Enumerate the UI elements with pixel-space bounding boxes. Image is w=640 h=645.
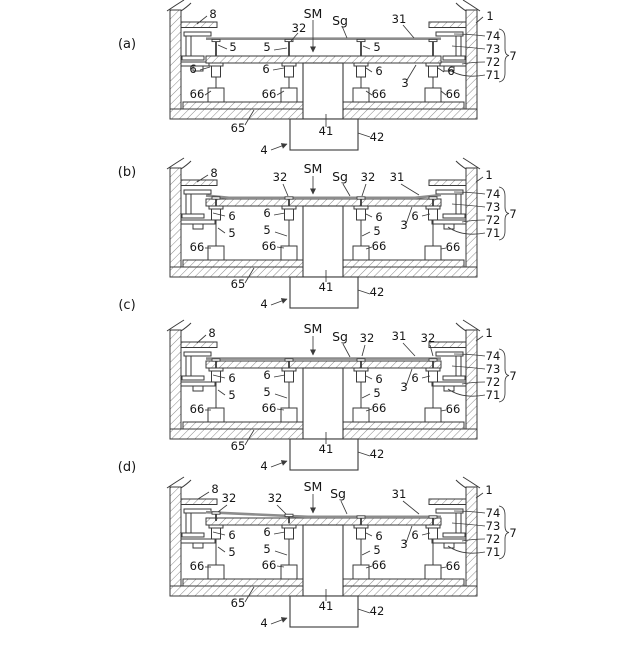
susceptor-plate	[206, 518, 441, 525]
panel-tag-c: (c)	[118, 298, 135, 313]
panel-tag-d: (d)	[118, 460, 136, 475]
panel-tag-a: (a)	[118, 37, 136, 52]
ref-label-42: 42	[370, 130, 385, 144]
ref-label-sg: Sg	[332, 13, 348, 28]
ref-label-66: 66	[446, 87, 461, 101]
susceptor-plate	[206, 361, 441, 368]
substrate-sheet	[206, 512, 441, 517]
panel-a: 8 1 SM Sg 31 32 5 5 5 6 6 6 6 66 66 66 6…	[167, 0, 517, 157]
ref-label-32: 32	[421, 331, 436, 345]
ref-label-sm: SM	[304, 321, 323, 336]
ref-label-65: 65	[231, 121, 246, 135]
ref-label-32: 32	[222, 491, 237, 505]
ref-label-1: 1	[485, 168, 492, 182]
figure-svg: 74 73 72 71 7 6 6 6 6 5 5 5 66 66 66 66 …	[0, 0, 640, 640]
ref-label-6: 6	[189, 62, 196, 76]
arrow-4	[271, 144, 287, 150]
ref-label-8: 8	[208, 326, 215, 340]
panel-b: 8 1 SM Sg 32 32 31	[167, 158, 517, 311]
ref-label-8: 8	[210, 166, 217, 180]
lift-pins	[212, 39, 437, 56]
ref-label-4: 4	[260, 143, 267, 157]
lift-shaft	[303, 63, 343, 119]
ref-label-5: 5	[229, 40, 236, 54]
ref-label-3: 3	[401, 76, 408, 90]
ref-label-31: 31	[390, 170, 405, 184]
ref-label-31: 31	[392, 329, 407, 343]
ref-label-sm: SM	[304, 6, 323, 21]
ref-label-32: 32	[273, 170, 288, 184]
ref-label-66: 66	[190, 87, 205, 101]
ref-label-sg: Sg	[332, 169, 348, 184]
substrate-sheet	[206, 195, 441, 198]
ref-label-6: 6	[262, 62, 269, 76]
lift-shaft	[303, 368, 343, 439]
ref-label-66: 66	[262, 87, 277, 101]
ref-label-1: 1	[485, 483, 492, 497]
ref-label-31: 31	[392, 487, 407, 501]
ref-label-1: 1	[485, 326, 492, 340]
ref-label-32: 32	[361, 170, 376, 184]
ref-label-sg: Sg	[332, 329, 348, 344]
ref-label-32: 32	[292, 21, 307, 35]
ref-label-66: 66	[372, 87, 387, 101]
susceptor-plate	[206, 56, 441, 63]
ref-label-6: 6	[447, 64, 454, 78]
ref-label-5: 5	[373, 40, 380, 54]
panel-d: 8 1 32 32 SM Sg 31	[167, 477, 517, 630]
panel-tag-b: (b)	[118, 165, 136, 180]
ref-label-31: 31	[392, 12, 407, 26]
ref-label-sm: SM	[304, 479, 323, 494]
ref-label-41: 41	[319, 124, 334, 138]
ref-label-8: 8	[211, 482, 218, 496]
ref-label-sm: SM	[304, 161, 323, 176]
ref-label-32: 32	[268, 491, 283, 505]
lift-shaft	[303, 525, 343, 596]
ref-label-sg: Sg	[330, 486, 346, 501]
ref-label-6: 6	[375, 64, 382, 78]
ref-label-32: 32	[360, 331, 375, 345]
lift-shaft	[303, 206, 343, 277]
ref-labels: 8 1 SM Sg 32 31 32	[208, 321, 492, 345]
ref-label-1: 1	[486, 9, 493, 23]
susceptor-plate	[206, 199, 441, 206]
ref-label-5: 5	[263, 40, 270, 54]
patent-figure-sheet: 74 73 72 71 7 6 6 6 6 5 5 5 66 66 66 66 …	[0, 0, 640, 640]
ref-label-8: 8	[209, 7, 216, 21]
panel-c: 8 1 SM Sg 32 31 32	[167, 320, 517, 473]
